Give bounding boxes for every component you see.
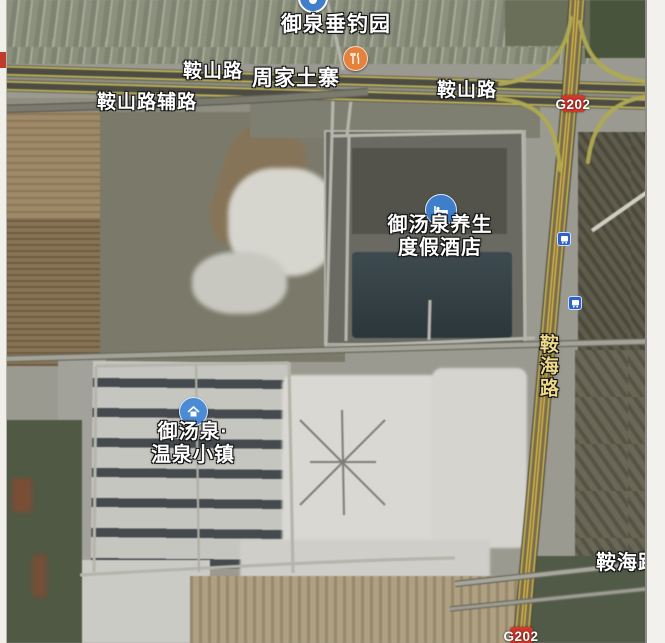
poi-label-town-line1: 御汤泉· <box>151 421 235 444</box>
left-border-line <box>6 0 7 643</box>
poi-label-town-line2: 温泉小镇 <box>151 444 235 467</box>
fork-knife-icon[interactable] <box>343 46 368 71</box>
bus-stop-icon-1[interactable] <box>557 232 571 246</box>
poi-label-hotel[interactable]: 御汤泉养生 度假酒店 <box>388 214 493 260</box>
poi-label-fishing-park[interactable]: 御泉垂钓园 <box>281 13 391 37</box>
road-label-anshan-left: 鞍山路 <box>183 61 243 83</box>
power-tower <box>300 410 385 515</box>
middle-road <box>0 341 665 359</box>
g202-badge-bottom-text: G202 <box>503 629 538 643</box>
poi-label-hotel-line1: 御汤泉养生 <box>388 214 493 237</box>
g202-badge-top: G202 <box>556 95 590 113</box>
road-label-anhai-vertical: 鞍海路 <box>536 334 558 400</box>
road-label-anshan-service: 鞍山路辅路 <box>97 92 197 114</box>
road-label-anshan-right: 鞍山路 <box>437 80 497 102</box>
poi-label-town[interactable]: 御汤泉· 温泉小镇 <box>151 421 235 467</box>
right-border-strip <box>647 0 665 643</box>
poi-label-hotel-line2: 度假酒店 <box>388 237 493 260</box>
g202-badge-text: G202 <box>555 97 590 112</box>
g202-badge-bottom: G202 <box>504 627 538 643</box>
left-red-marker <box>0 52 6 68</box>
satellite-map-canvas[interactable]: 御泉垂钓园 周家土寨 鞍山路 鞍山路辅路 鞍山路 G202 御汤泉养生 度假酒店… <box>0 0 665 643</box>
bus-stop-icon-2[interactable] <box>568 296 582 310</box>
poi-label-restaurant[interactable]: 周家土寨 <box>252 67 340 91</box>
